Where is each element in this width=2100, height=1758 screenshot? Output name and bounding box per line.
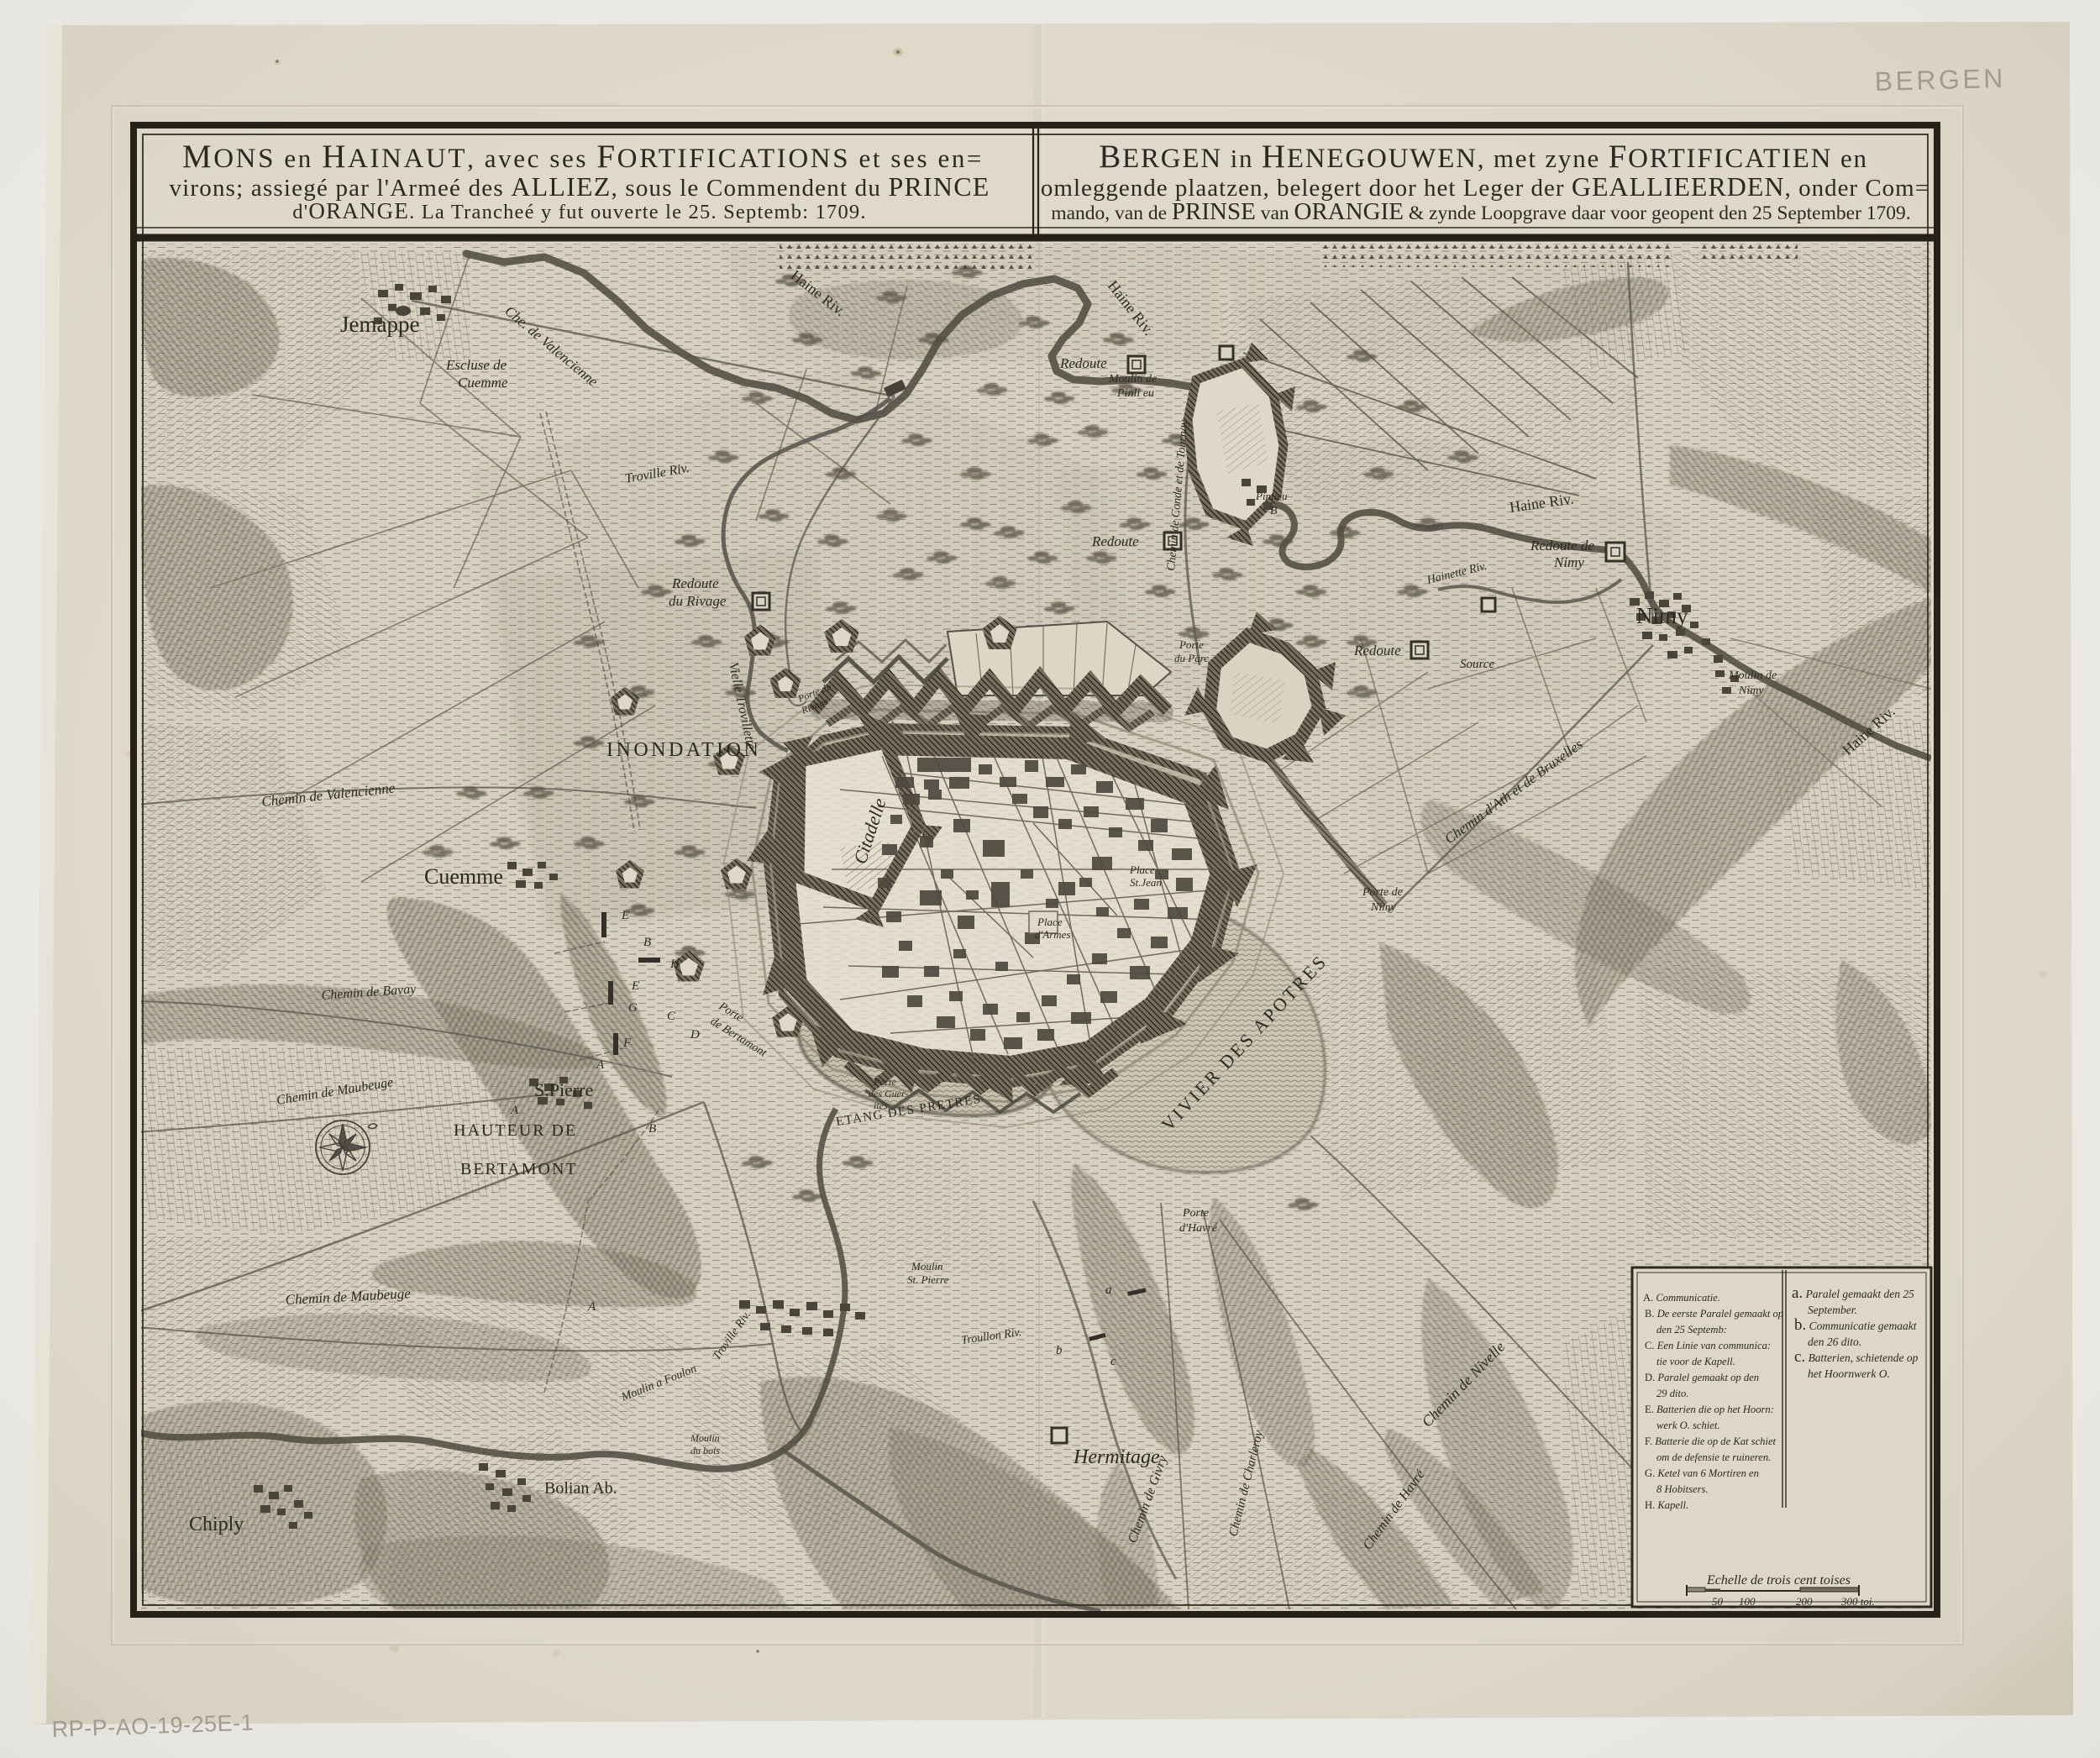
svg-text:Place: Place (1037, 916, 1063, 928)
svg-text:d'Armes: d'Armes (1035, 928, 1071, 941)
svg-text:Pinlieu: Pinlieu (1255, 490, 1288, 502)
svg-text:F. Batterie die op de Kat schi: F. Batterie die op de Kat schiet (1645, 1435, 1777, 1447)
svg-text:tie voor de Kapell.: tie voor de Kapell. (1656, 1356, 1735, 1367)
svg-text:Moulin: Moulin (690, 1432, 720, 1444)
svg-text:Moulin de: Moulin de (1728, 669, 1777, 682)
svg-text:BERGEN in HENEGOUWEN, met zyne: BERGEN in HENEGOUWEN, met zyne FORTIFICA… (1099, 139, 1868, 175)
svg-text:F: F (622, 1036, 632, 1050)
svg-text:d'ORANGE. La Trancheé y fut ou: d'ORANGE. La Trancheé y fut ouverte le 2… (292, 198, 866, 223)
svg-text:50: 50 (1712, 1595, 1724, 1608)
svg-text:H. Kapell.: H. Kapell. (1645, 1499, 1688, 1511)
svg-text:HAUTEUR DE: HAUTEUR DE (454, 1121, 577, 1140)
svg-text:B: B (648, 1122, 656, 1136)
svg-text:des Guer-: des Guer- (869, 1088, 908, 1099)
svg-text:Redoute: Redoute (1091, 533, 1139, 549)
svg-text:Redoute: Redoute (671, 575, 719, 591)
svg-text:BERTAMONT: BERTAMONT (460, 1160, 578, 1178)
svg-text:A: A (596, 1058, 605, 1072)
svg-text:Porte: Porte (1182, 1207, 1209, 1220)
svg-text:b. Communicatie gemaakt: b. Communicatie gemaakt (1794, 1316, 1918, 1334)
svg-text:a. Paralel gemaakt den 25: a. Paralel gemaakt den 25 (1792, 1284, 1914, 1302)
svg-text:D: D (690, 1028, 700, 1042)
svg-text:S.Pierre: S.Pierre (534, 1079, 593, 1100)
svg-text:omleggende plaatzen, belegert: omleggende plaatzen, belegert door het L… (1041, 171, 1929, 202)
svg-text:c: c (1110, 1355, 1116, 1368)
svg-text:c. Batterien, schietende op: c. Batterien, schietende op (1794, 1348, 1919, 1366)
svg-text:Echelle de trois cent toises: Echelle de trois cent toises (1706, 1573, 1851, 1587)
svg-text:September.: September. (1808, 1304, 1857, 1316)
svg-text:B: B (1270, 505, 1278, 517)
svg-text:du bois: du bois (690, 1445, 720, 1456)
svg-text:du Parc: du Parc (1174, 652, 1209, 664)
svg-text:H: H (669, 958, 680, 971)
svg-text:Cuemme: Cuemme (424, 864, 503, 889)
svg-text:Escluse de: Escluse de (445, 357, 507, 373)
svg-text:29 dito.: 29 dito. (1656, 1388, 1688, 1399)
svg-text:b: b (1056, 1344, 1063, 1357)
svg-text:INONDATION: INONDATION (606, 739, 761, 761)
svg-text:300 toi.: 300 toi. (1840, 1595, 1875, 1608)
svg-text:Redoute: Redoute (1059, 355, 1107, 371)
svg-text:G. Ketel van 6 Mortiren en: G. Ketel van 6 Mortiren en (1645, 1467, 1759, 1479)
svg-text:Pinli eu: Pinli eu (1116, 387, 1154, 400)
svg-text:D. Paralel gemaakt op den: D. Paralel gemaakt op den (1645, 1372, 1759, 1383)
svg-text:d'Havré: d'Havré (1179, 1222, 1218, 1235)
svg-text:Moulin: Moulin (911, 1260, 943, 1273)
svg-text:Nimy: Nimy (1370, 901, 1396, 914)
svg-text:A: A (510, 1104, 519, 1117)
svg-text:virons; assiegé par l'Armeé de: virons; assiegé par l'Armeé des ALLIEZ, … (169, 171, 990, 202)
svg-text:E. Batterien die op het Hoorn:: E. Batterien die op het Hoorn: (1645, 1404, 1774, 1415)
svg-text:A: A (587, 1300, 596, 1314)
svg-text:G: G (628, 1001, 638, 1015)
svg-text:a: a (1105, 1283, 1112, 1297)
svg-text:werk O. schiet.: werk O. schiet. (1656, 1420, 1720, 1431)
svg-text:C: C (667, 1010, 676, 1023)
svg-text:200: 200 (1796, 1595, 1813, 1608)
svg-text:Jemappe: Jemappe (340, 312, 419, 337)
svg-text:A. Communicatie.: A. Communicatie. (1643, 1292, 1720, 1304)
svg-text:om de defensie te ruineren.: om de defensie te ruineren. (1656, 1451, 1771, 1463)
svg-text:100: 100 (1739, 1595, 1756, 1608)
svg-text:Bolian Ab.: Bolian Ab. (544, 1479, 617, 1498)
svg-text:B: B (643, 936, 651, 949)
svg-text:Redoute: Redoute (1353, 643, 1401, 659)
svg-text:BERGEN: BERGEN (1874, 63, 2006, 97)
svg-text:E: E (631, 979, 639, 993)
svg-text:St.Jean: St.Jean (1130, 876, 1162, 889)
svg-text:Source: Source (1460, 658, 1494, 671)
svg-text:Moulin de: Moulin de (1108, 373, 1157, 386)
svg-text:Chiply: Chiply (189, 1514, 244, 1535)
svg-text:MONS en HAINAUT, avec ses FORT: MONS en HAINAUT, avec ses FORTIFICATIONS… (182, 139, 984, 175)
svg-text:Redoute de: Redoute de (1530, 538, 1594, 554)
svg-text:Nimy: Nimy (1636, 603, 1688, 628)
svg-text:Porte de: Porte de (1362, 886, 1403, 899)
svg-text:E: E (621, 909, 629, 922)
svg-text:8 Hobitsers.: 8 Hobitsers. (1656, 1483, 1709, 1495)
svg-text:Nimy: Nimy (1738, 685, 1764, 697)
svg-text:C. Een Linie van communica:: C. Een Linie van communica: (1645, 1340, 1771, 1351)
svg-text:het Hoornwerk O.: het Hoornwerk O. (1808, 1367, 1890, 1380)
svg-text:B. De eerste Paralel gemaakt o: B. De eerste Paralel gemaakt op (1645, 1308, 1783, 1320)
svg-text:St. Pierre: St. Pierre (907, 1273, 949, 1286)
svg-text:Porte: Porte (873, 1076, 896, 1088)
svg-text:Porte: Porte (1179, 638, 1204, 651)
svg-text:Hermitage: Hermitage (1073, 1446, 1160, 1468)
svg-text:den 26 dito.: den 26 dito. (1808, 1336, 1861, 1348)
svg-text:Place: Place (1129, 863, 1155, 876)
svg-text:Nimy: Nimy (1553, 554, 1584, 570)
svg-text:mando, van de PRINSE van ORANG: mando, van de PRINSE van ORANGIE & zynde… (1051, 198, 1910, 225)
svg-text:du Rivage: du Rivage (669, 593, 727, 609)
svg-text:den 25 Septemb:: den 25 Septemb: (1656, 1324, 1727, 1336)
svg-text:Cuemme: Cuemme (458, 375, 508, 391)
